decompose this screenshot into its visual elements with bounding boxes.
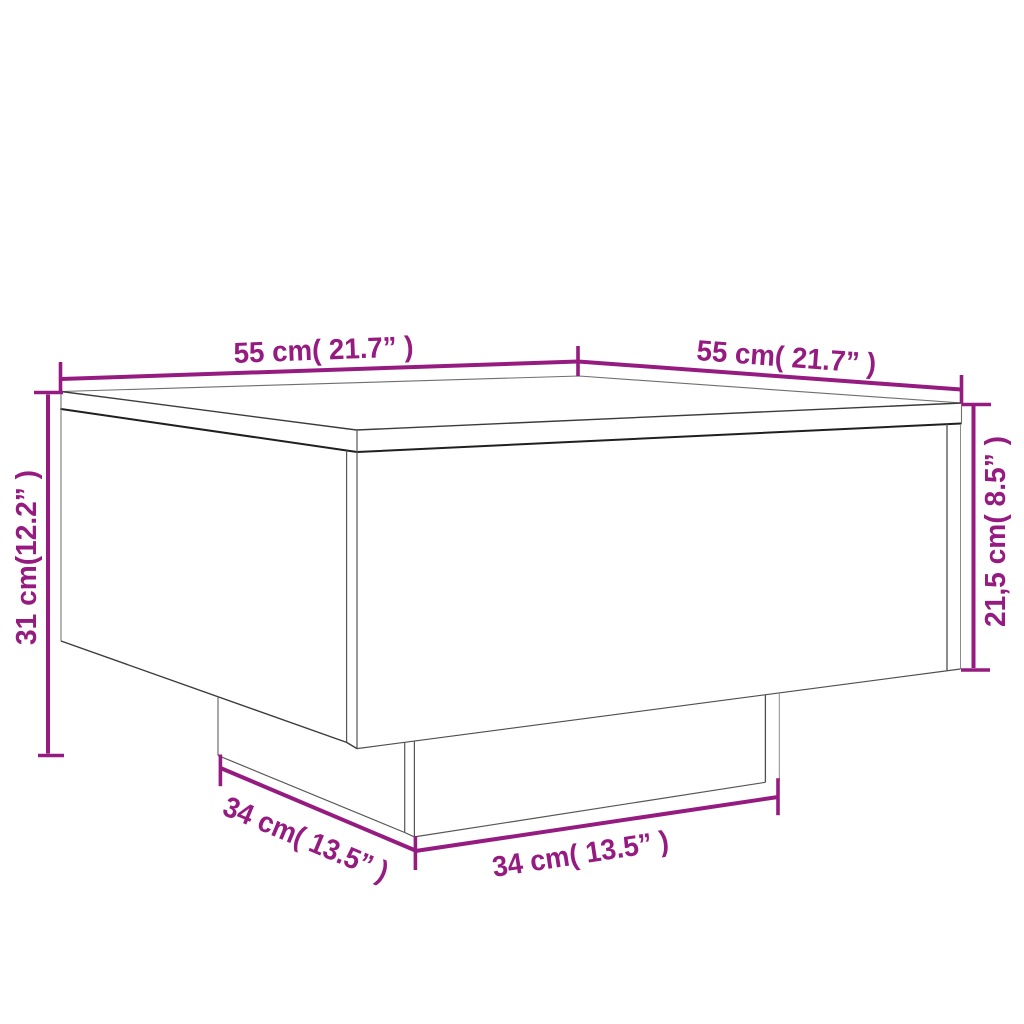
svg-text:21,5 cm( 8.5” ): 21,5 cm( 8.5” ) [980,436,1012,627]
svg-text:31 cm(12.2” ): 31 cm(12.2” ) [11,470,43,645]
